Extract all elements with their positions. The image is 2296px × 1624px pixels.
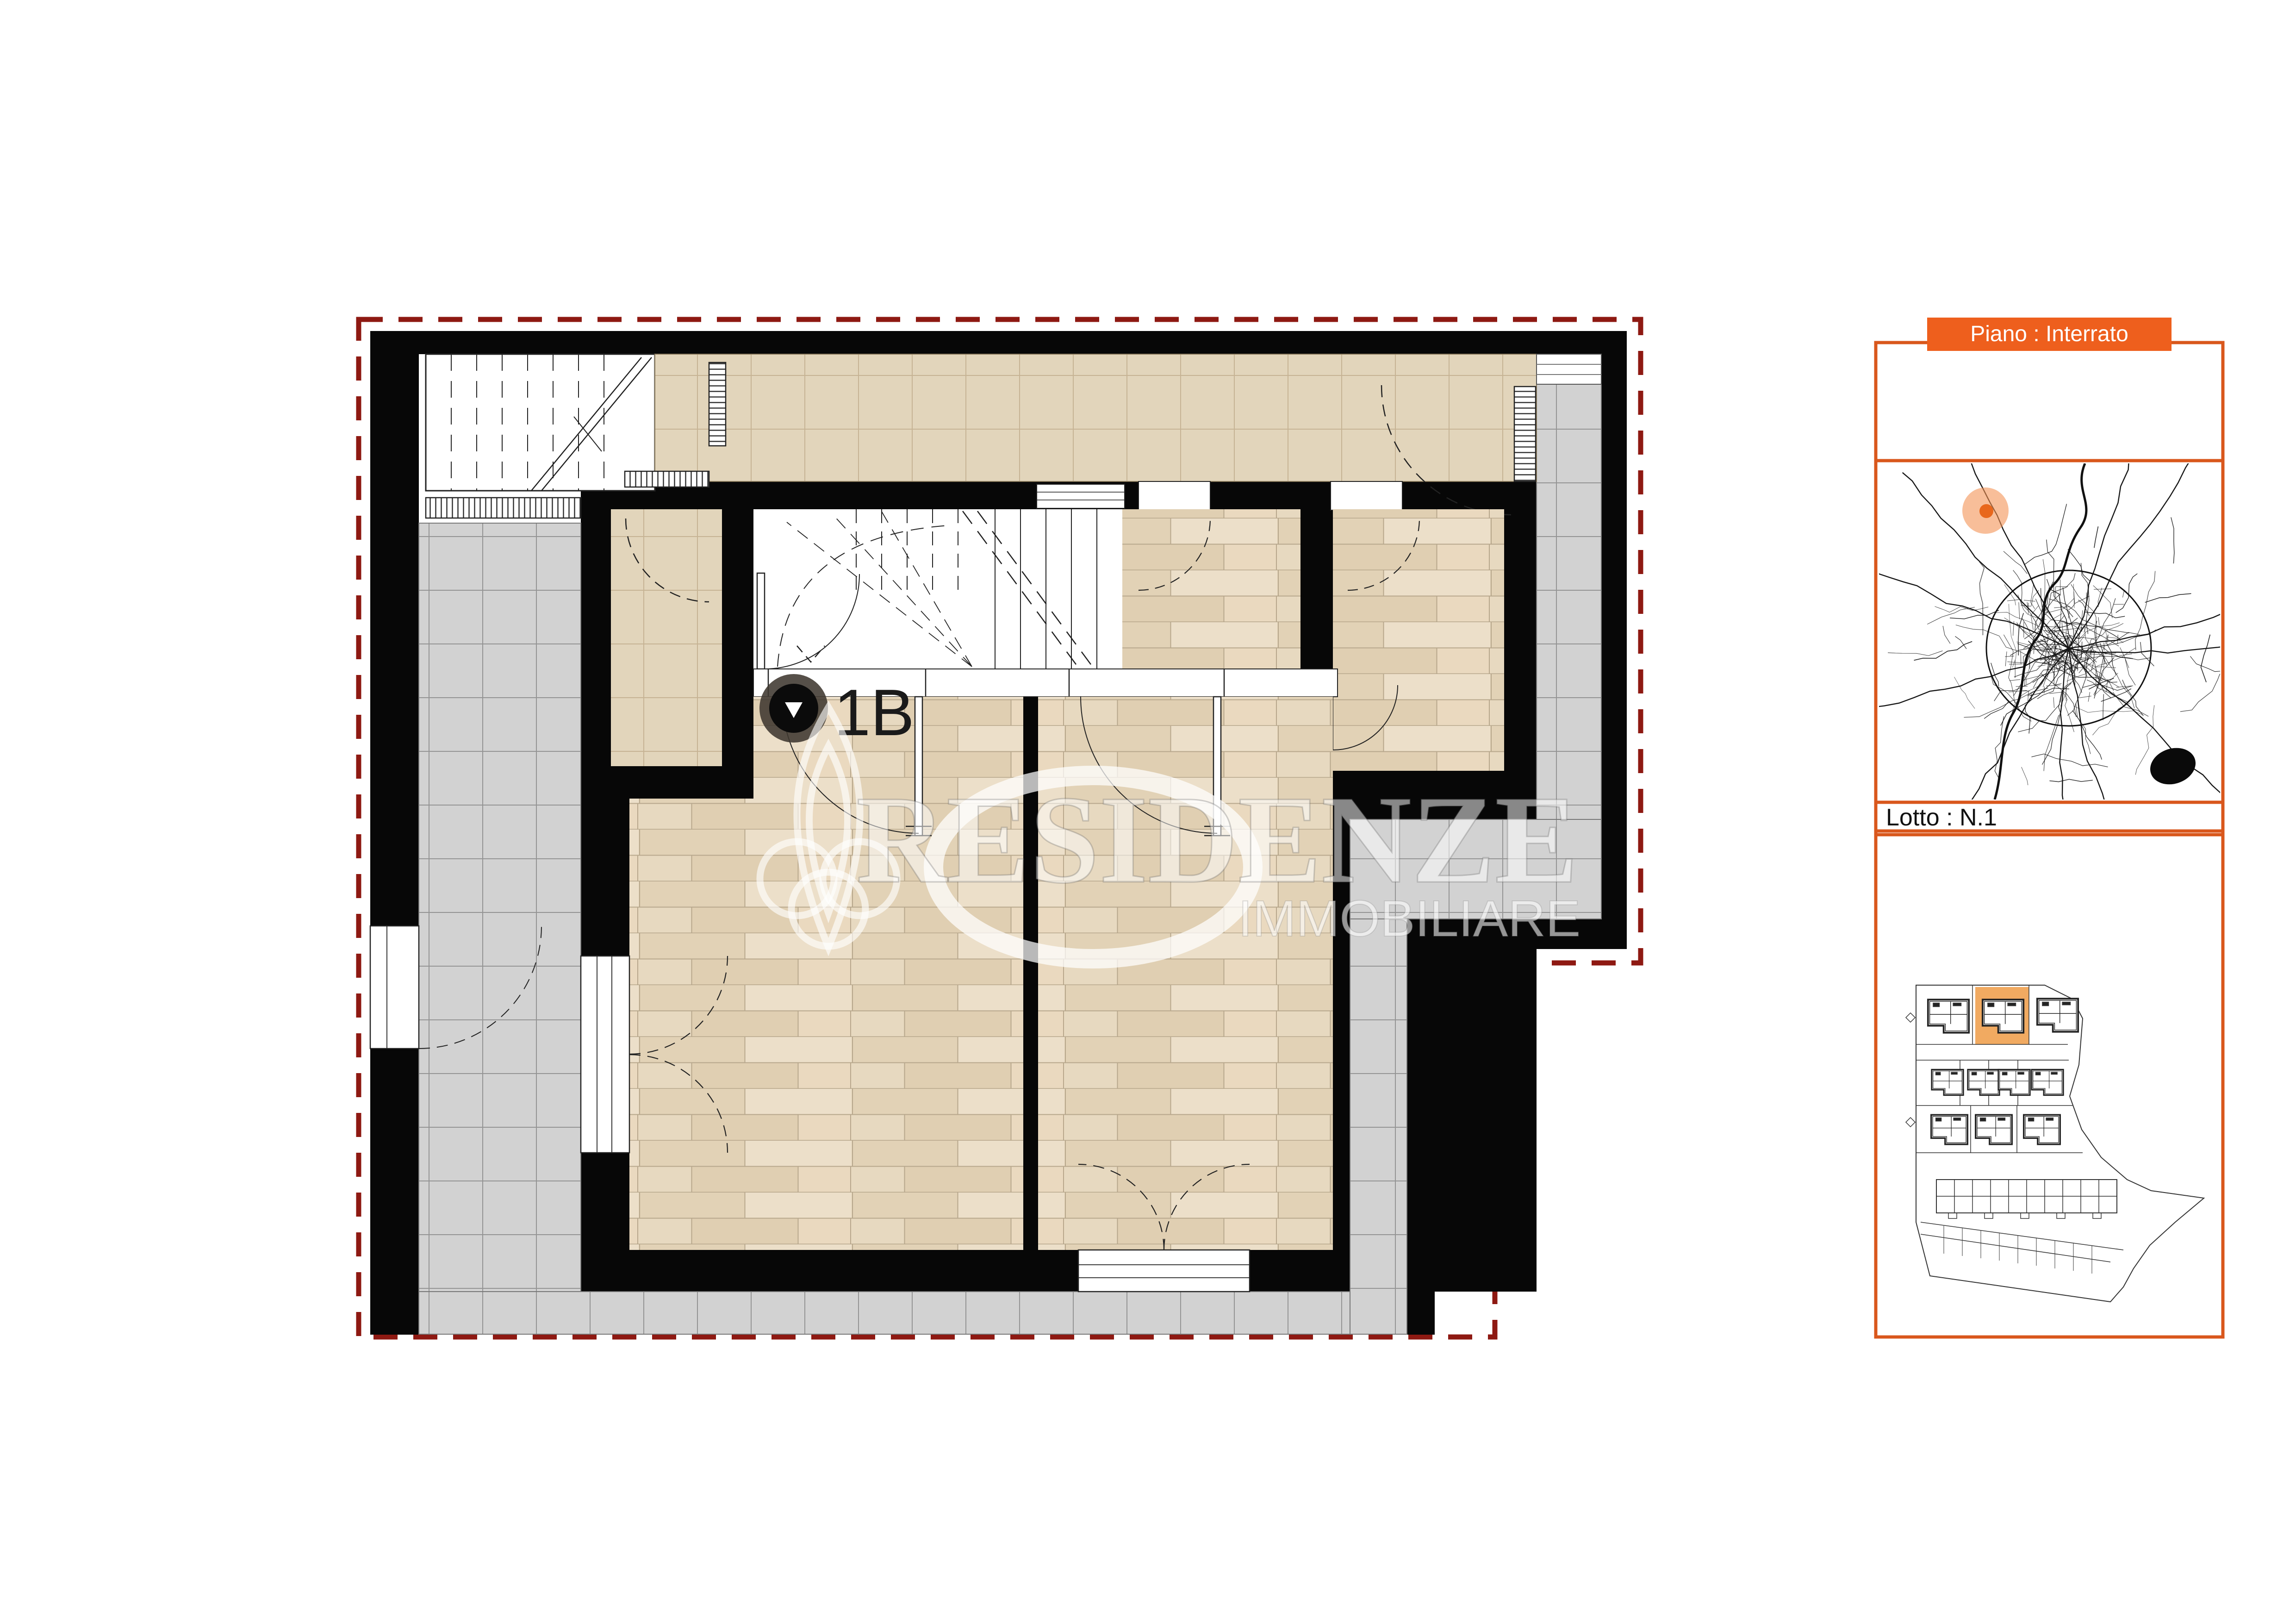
corridor-room: [1122, 509, 1300, 669]
stair-landing-door-leaf: [757, 573, 765, 669]
side-panel: Lotto : N.1 Piano : Interrato: [1836, 318, 2296, 1337]
door-opening-bathroom: [1331, 481, 1402, 510]
terrace-grate: [709, 362, 726, 446]
window-above-stair: [1037, 484, 1125, 508]
map-marker-dot: [1979, 504, 1993, 518]
drainage-grate: [426, 498, 581, 518]
watermark-title: RESIDENZE: [856, 770, 1578, 909]
floor-plan: 1B RESIDENZE IMMOBILIARE: [359, 319, 1641, 1337]
lot-label: Lotto : N.1: [1886, 804, 1997, 831]
bathroom: [1333, 509, 1504, 771]
page-canvas: 1B RESIDENZE IMMOBILIARE: [0, 0, 2296, 1624]
interior-stair: [753, 509, 1122, 669]
door-opening-corridor: [1139, 481, 1210, 510]
floor-tag: Piano : Interrato: [1970, 322, 2128, 346]
terrace-ladder: [1514, 387, 1536, 481]
storage-room: [611, 509, 722, 766]
terrace-top-steps: [1537, 354, 1601, 384]
storage-vent-grate: [625, 471, 709, 487]
watermark-subtitle: IMMOBILIARE: [1238, 890, 1580, 947]
